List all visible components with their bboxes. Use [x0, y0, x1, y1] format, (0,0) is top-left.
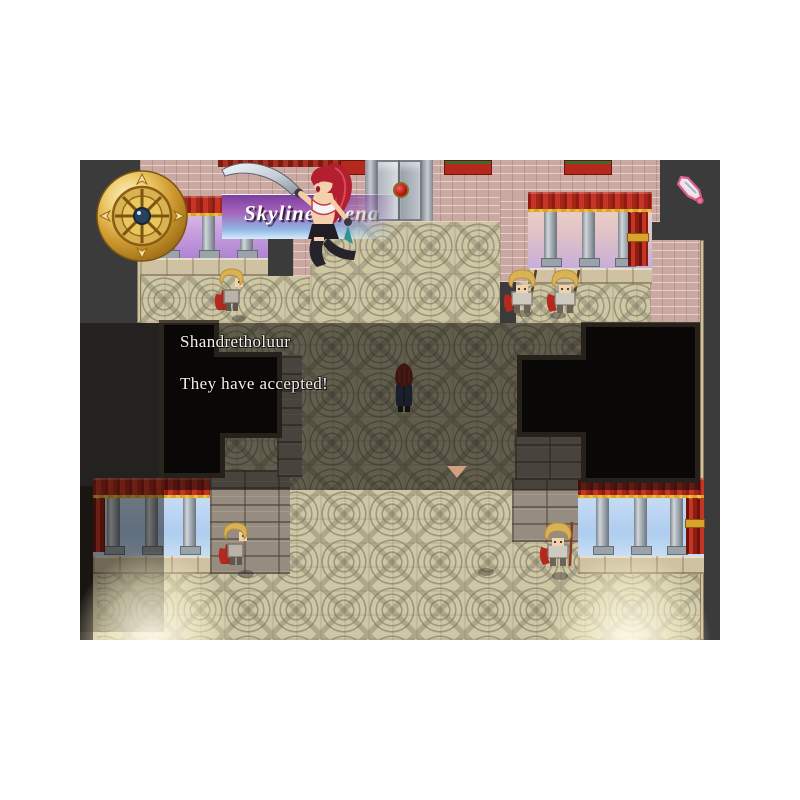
guard-pair-sprite — [502, 266, 542, 318]
floor-mark — [238, 570, 254, 578]
balcony-top-right — [528, 192, 652, 268]
announcer-artwork — [215, 160, 370, 270]
column-icon — [670, 494, 683, 552]
curtain-valance-icon — [528, 192, 652, 212]
game-viewport[interactable]: Shandretholuur They have accepted! Skyli… — [80, 160, 720, 640]
planter-box-center — [444, 160, 492, 175]
column-icon — [544, 208, 557, 264]
light-glow — [546, 552, 710, 640]
continue-arrow-icon[interactable] — [447, 466, 467, 478]
curtain-side-icon — [628, 206, 648, 266]
sword-cursor-icon — [676, 175, 706, 207]
floor-mark — [478, 568, 494, 576]
dialogue-text: They have accepted! — [180, 374, 328, 394]
floor-mark — [232, 315, 246, 322]
column-icon — [596, 494, 609, 552]
column-icon — [183, 494, 196, 552]
planter-box-right — [564, 160, 612, 175]
page: { "window": { "background_color": "#ffff… — [0, 0, 800, 800]
guard-pair-sprite — [545, 266, 585, 318]
door-frame-right — [422, 160, 433, 221]
guard-upper-left-sprite — [212, 266, 250, 316]
light-glow — [80, 552, 232, 640]
column-icon — [634, 494, 647, 552]
dialogue-speaker: Shandretholuur — [180, 332, 290, 352]
wall-outer-right — [650, 240, 700, 323]
column-icon — [582, 208, 595, 264]
compass-wheel-icon — [96, 170, 188, 262]
